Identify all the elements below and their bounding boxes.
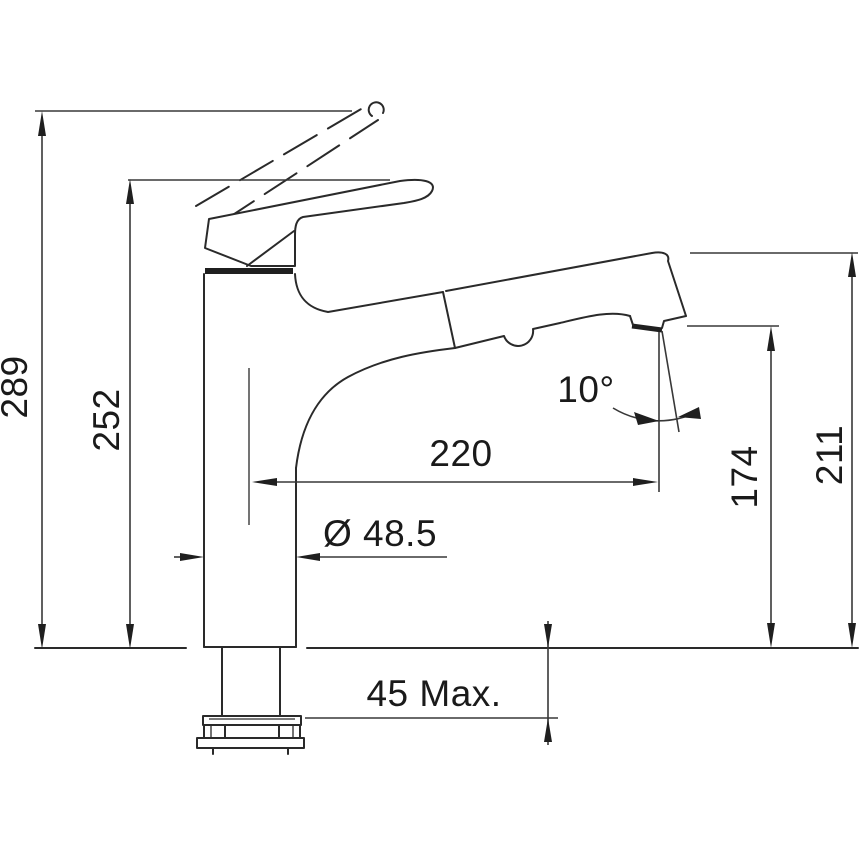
- arrowhead-angle-left: [634, 412, 659, 425]
- label-spout-height: 211: [809, 425, 850, 486]
- spray-head-bottom-right-step: [662, 316, 686, 328]
- spray-head-top-and-right-edge: [446, 252, 686, 316]
- raised-handle-dashed-line-upper: [196, 105, 368, 206]
- spray-outlet-aerator: [632, 326, 662, 330]
- mounting-plate-upper: [203, 716, 301, 725]
- arrowhead-counter-bottom: [544, 718, 552, 742]
- arrowhead-handle-top: [126, 179, 134, 204]
- label-spout-reach: 220: [429, 433, 492, 474]
- mounting-nut-left: [204, 725, 225, 738]
- arrowhead-spout-bottom: [848, 623, 856, 648]
- label-spray-angle: 10°: [557, 369, 614, 410]
- arrowhead-counter-top: [544, 624, 552, 648]
- label-outlet-height: 174: [724, 445, 765, 508]
- label-handle-height: 252: [86, 388, 127, 451]
- mounting-plate-lower: [197, 738, 304, 748]
- spray-head-bottom-left-step: [630, 316, 633, 325]
- arrowhead-diameter-left: [180, 553, 204, 561]
- mounting-nut-right: [279, 725, 300, 738]
- arrowhead-handle-bottom: [126, 624, 134, 649]
- arrowhead-overall-bottom: [38, 624, 46, 649]
- spray-head-seam: [443, 292, 455, 348]
- arrowhead-reach-right: [633, 478, 658, 486]
- arrowhead-diameter-right: [296, 553, 320, 561]
- label-counter-thickness: 45 Max.: [366, 673, 501, 714]
- spray-head-underside: [455, 314, 630, 348]
- ref-line-spray-angled: [662, 331, 679, 432]
- arrowhead-outlet-bottom: [767, 623, 775, 648]
- label-base-diameter: Ø 48.5: [323, 513, 437, 554]
- spout-neck-top-edge: [295, 274, 443, 312]
- raised-handle-tip-arc: [369, 102, 384, 116]
- technical-drawing-canvas: 289 252 220 10° 174: [0, 0, 860, 860]
- handle-lever: [205, 180, 433, 266]
- label-overall-height: 289: [0, 355, 35, 418]
- arrowhead-outlet-top: [767, 326, 775, 351]
- faucet-outline: [35, 102, 858, 754]
- arrowhead-overall-top: [38, 111, 46, 136]
- arrowhead-spout-top: [848, 252, 856, 277]
- arrowhead-angle-right: [678, 407, 701, 419]
- dimension-annotations: 289 252 220 10° 174: [0, 111, 858, 745]
- arrowhead-reach-left: [252, 478, 277, 486]
- faucet-dimension-drawing: 289 252 220 10° 174: [0, 0, 860, 860]
